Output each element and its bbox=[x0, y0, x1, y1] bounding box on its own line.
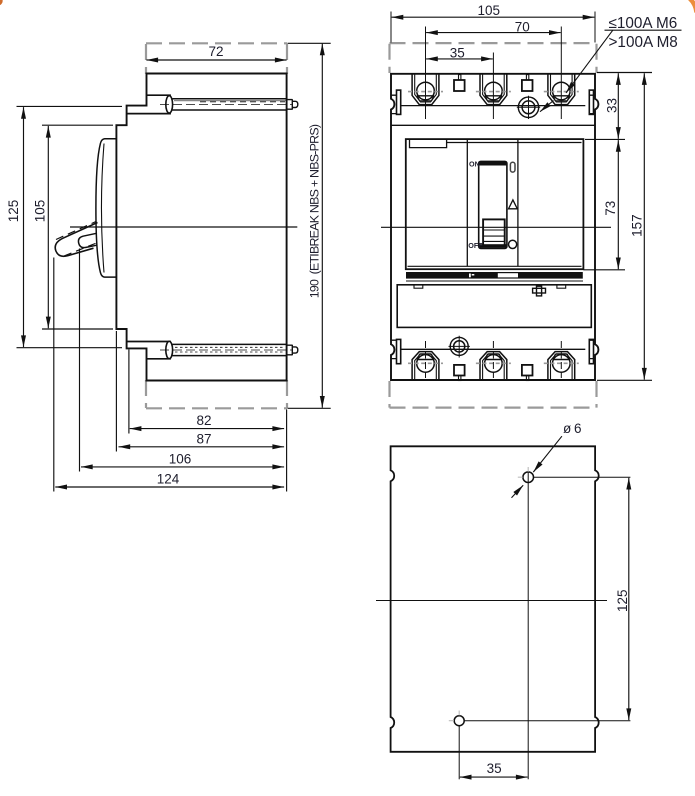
svg-text:124: 124 bbox=[157, 472, 180, 487]
svg-text:35: 35 bbox=[450, 46, 465, 61]
svg-text:125: 125 bbox=[6, 200, 21, 223]
svg-text:>100A M8: >100A M8 bbox=[609, 34, 678, 51]
svg-text:106: 106 bbox=[169, 452, 192, 467]
svg-text:70: 70 bbox=[515, 19, 530, 34]
svg-text:ON: ON bbox=[469, 160, 480, 169]
svg-text:82: 82 bbox=[196, 413, 211, 428]
svg-text:105: 105 bbox=[33, 200, 48, 223]
svg-text:33: 33 bbox=[605, 98, 620, 113]
svg-text:105: 105 bbox=[478, 3, 501, 18]
svg-text:35: 35 bbox=[487, 761, 502, 776]
svg-text:OFF: OFF bbox=[468, 241, 483, 250]
svg-text:87: 87 bbox=[196, 432, 211, 447]
svg-text:ø 6: ø 6 bbox=[563, 421, 581, 436]
svg-text:125: 125 bbox=[615, 589, 630, 612]
svg-text:73: 73 bbox=[603, 201, 618, 216]
svg-text:190 (ETIBREAK NBS + NBS-PRS): 190 (ETIBREAK NBS + NBS-PRS) bbox=[307, 124, 321, 298]
svg-text:≤100A M6: ≤100A M6 bbox=[609, 15, 678, 32]
svg-text:157: 157 bbox=[629, 214, 644, 237]
svg-text:72: 72 bbox=[208, 44, 223, 59]
